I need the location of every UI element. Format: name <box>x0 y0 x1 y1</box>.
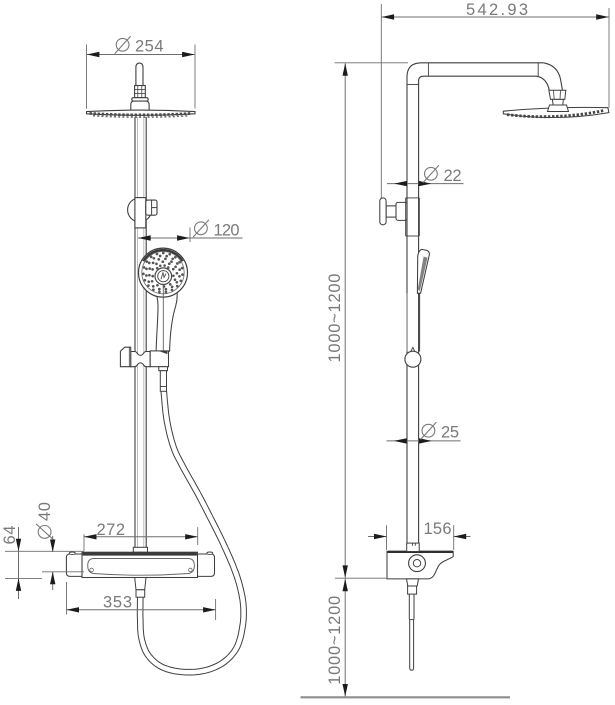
svg-text:272: 272 <box>97 521 126 539</box>
svg-text:40: 40 <box>36 502 54 521</box>
svg-text:22: 22 <box>444 167 462 185</box>
svg-text:156: 156 <box>424 520 452 538</box>
svg-text:25: 25 <box>441 424 459 442</box>
svg-text:542.93: 542.93 <box>466 1 528 19</box>
svg-text:120: 120 <box>214 221 240 239</box>
svg-text:64: 64 <box>1 526 19 545</box>
svg-text:1000~1200: 1000~1200 <box>326 274 344 363</box>
svg-text:254: 254 <box>135 37 164 55</box>
svg-text:1000~1200: 1000~1200 <box>326 596 344 685</box>
svg-text:353: 353 <box>103 594 132 612</box>
